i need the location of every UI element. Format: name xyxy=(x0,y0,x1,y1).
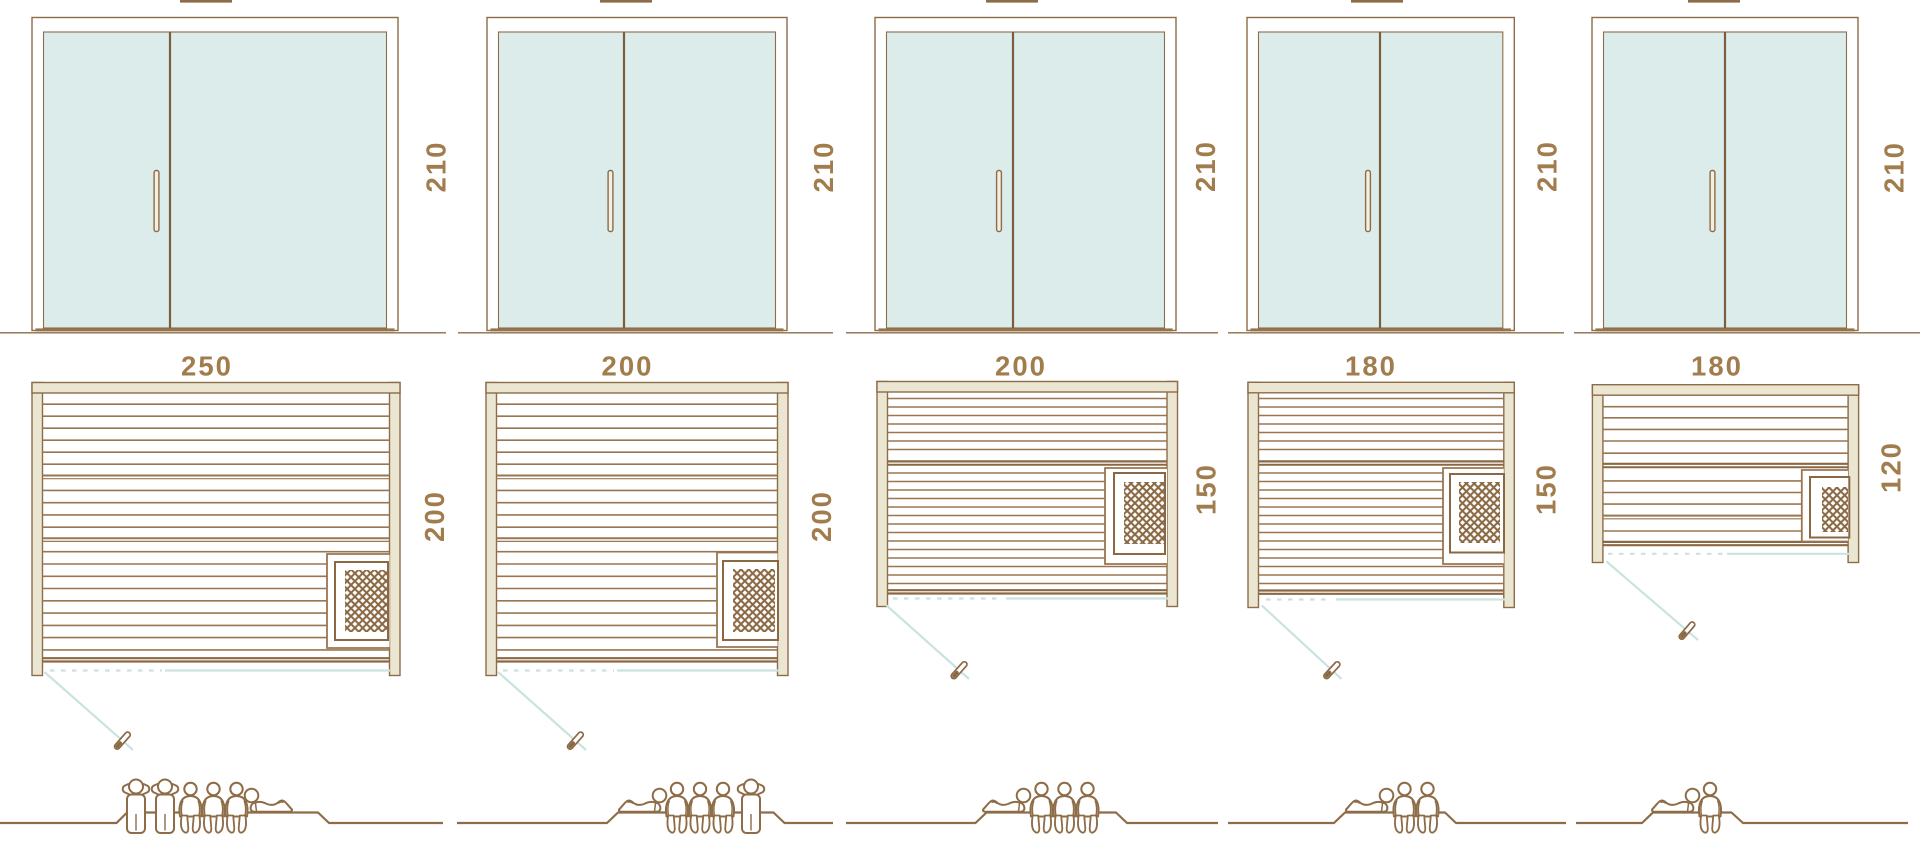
svg-text:150: 150 xyxy=(1191,463,1222,515)
svg-text:250: 250 xyxy=(181,351,233,382)
svg-text:180: 180 xyxy=(1345,351,1397,382)
svg-text:120: 120 xyxy=(1876,441,1907,493)
svg-text:210: 210 xyxy=(808,141,839,193)
svg-text:210: 210 xyxy=(421,141,452,193)
svg-text:210: 210 xyxy=(1190,140,1221,192)
svg-text:210: 210 xyxy=(1532,140,1563,192)
svg-text:150: 150 xyxy=(1531,463,1562,515)
svg-text:200: 200 xyxy=(419,490,450,542)
svg-text:200: 200 xyxy=(995,351,1047,382)
svg-text:180: 180 xyxy=(1691,351,1743,382)
svg-text:210: 210 xyxy=(1879,141,1910,193)
svg-text:200: 200 xyxy=(806,490,837,542)
svg-text:200: 200 xyxy=(602,351,654,382)
